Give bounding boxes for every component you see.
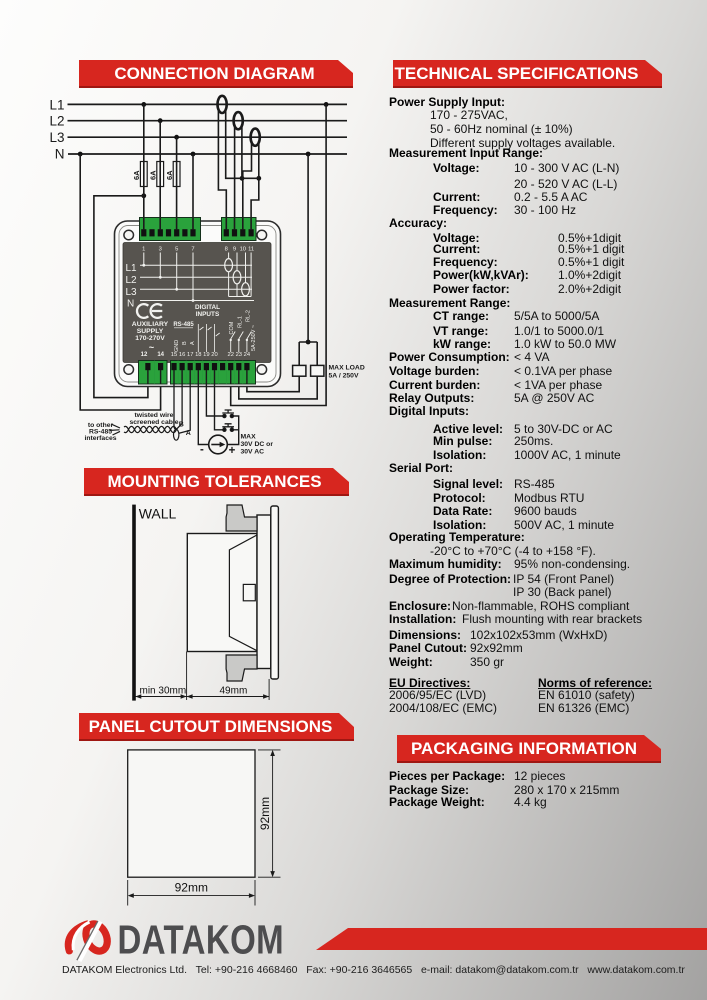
svg-text:19: 19 [203,352,209,358]
svg-text:11: 11 [248,247,254,253]
svg-text:10: 10 [240,247,246,253]
svg-text:1: 1 [142,247,145,253]
svg-text:9: 9 [233,247,236,253]
svg-text:~: ~ [149,343,154,353]
svg-text:14: 14 [157,352,164,358]
svg-text:SUPPLY: SUPPLY [137,328,164,335]
svg-text:170-270V: 170-270V [135,335,165,342]
svg-text:7: 7 [191,247,194,253]
svg-text:24: 24 [244,352,251,358]
svg-text:DATAKOM: DATAKOM [118,916,285,962]
svg-text:L1: L1 [126,263,138,274]
svg-text:GND: GND [174,340,180,352]
svg-text:WALL: WALL [139,505,177,521]
svg-text:17: 17 [187,352,193,358]
svg-text:DIGITAL: DIGITAL [195,304,220,311]
svg-text:min 30mm: min 30mm [140,686,187,697]
svg-text:18: 18 [195,352,201,358]
svg-text:8: 8 [225,247,228,253]
svg-text:L1: L1 [49,98,64,113]
svg-text:15: 15 [171,352,177,358]
svg-text:5: 5 [175,247,178,253]
svg-text:6A: 6A [148,170,157,180]
svg-text:23: 23 [236,352,242,358]
svg-text:20: 20 [211,352,217,358]
svg-text:16: 16 [179,352,185,358]
svg-text:interfaces: interfaces [84,435,116,442]
svg-text:N: N [127,299,134,310]
svg-text:-: - [200,444,204,456]
svg-text:30V DC or: 30V DC or [241,441,274,448]
svg-text:A: A [190,341,196,345]
svg-text:L2: L2 [49,114,64,129]
svg-text:MAX LOAD: MAX LOAD [329,365,365,372]
svg-text:L3: L3 [49,130,64,145]
svg-text:49mm: 49mm [220,686,248,697]
svg-text:MAX: MAX [241,434,257,441]
svg-text:92mm: 92mm [175,881,208,895]
svg-text:22: 22 [227,352,233,358]
svg-text:A: A [186,430,191,437]
svg-text:N: N [55,147,65,162]
svg-text:L2: L2 [126,275,138,286]
svg-text:screened cable: screened cable [129,419,178,426]
svg-text:6A: 6A [165,170,174,180]
svg-text:12: 12 [141,352,148,358]
svg-text:+: + [229,445,236,457]
svg-text:B: B [182,341,188,345]
svg-text:5A-250V ~: 5A-250V ~ [251,325,257,351]
svg-text:5A / 250V: 5A / 250V [329,373,359,380]
svg-text:INPUTS: INPUTS [196,311,220,318]
svg-text:3: 3 [159,247,162,253]
svg-text:RL-1: RL-1 [237,316,243,328]
svg-text:92mm: 92mm [258,797,272,830]
svg-text:B: B [179,421,184,428]
svg-text:6A: 6A [132,170,141,180]
svg-text:COM: COM [229,321,235,334]
svg-text:30V AC: 30V AC [241,449,265,456]
svg-text:RS-485: RS-485 [173,322,194,328]
svg-text:L3: L3 [126,287,138,298]
svg-text:AUXILIARY: AUXILIARY [132,321,169,328]
svg-text:RL-2: RL-2 [245,310,251,322]
